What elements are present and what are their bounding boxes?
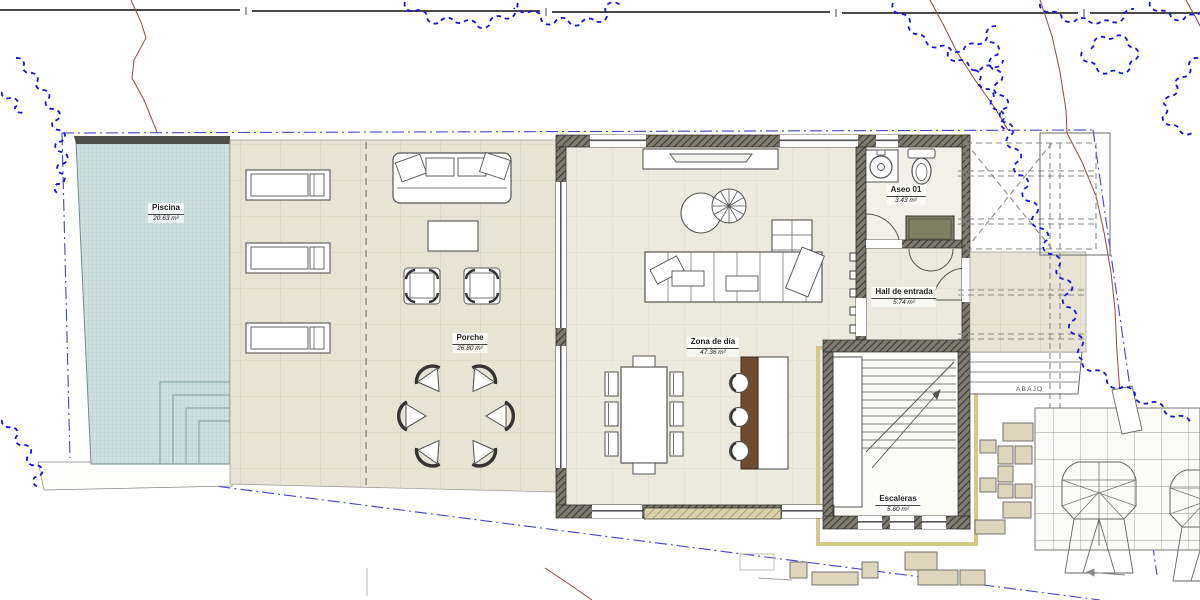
site-boundary-top <box>0 7 1200 17</box>
room-label-zona-de-dia: Zona de día 47.36 m² <box>687 330 739 357</box>
room-area: 5.60 m² <box>875 506 920 514</box>
room-label-piscina: Piscina 20.63 m² <box>148 196 184 223</box>
pool-deck <box>38 462 232 490</box>
floor-plan-drawing <box>0 0 1200 600</box>
hall-closet <box>906 216 954 242</box>
dining-set <box>605 356 683 474</box>
room-label-aseo-01: Aseo 01 3.43 m² <box>887 178 926 205</box>
room-name: Escaleras <box>875 494 920 506</box>
dining-chair <box>633 463 655 474</box>
room-label-escaleras: Escaleras 5.60 m² <box>875 487 920 514</box>
room-label-porche: Porche 26.80 m² <box>452 326 487 353</box>
pool <box>38 136 232 490</box>
dining-chair <box>633 356 655 367</box>
paving-outline <box>740 554 774 570</box>
driveway-arrow-icon <box>1087 569 1125 576</box>
bar-stool <box>730 408 749 427</box>
room-name: Aseo 01 <box>887 185 926 197</box>
room-area: 26.80 m² <box>452 345 487 353</box>
armchair <box>464 268 500 304</box>
room-area: 3.43 m² <box>887 197 926 205</box>
bar-stool <box>730 374 749 393</box>
room-name: Piscina <box>148 203 184 215</box>
sun-lounger <box>246 243 330 273</box>
floor-plan-canvas: Piscina 20.63 m² Porche 26.80 m² Zona de… <box>0 0 1200 600</box>
porch-sofa <box>393 152 511 203</box>
room-area: 5.74 m² <box>871 299 936 307</box>
room-name: Hall de entrada <box>871 287 936 299</box>
room-label-hall: Hall de entrada 5.74 m² <box>871 280 936 307</box>
room-area: 47.36 m² <box>687 349 739 357</box>
sun-lounger <box>246 170 330 200</box>
porch <box>230 140 556 492</box>
east-terrace-floor <box>970 252 1086 352</box>
kitchen-island <box>730 357 789 469</box>
armchair <box>404 268 440 304</box>
abajo-annotation: ABAJO <box>1016 386 1043 393</box>
kerb-line <box>758 578 792 580</box>
kitchen-sideboard <box>643 149 778 169</box>
driveway <box>1035 408 1200 550</box>
coffee-table <box>428 221 478 251</box>
spiral-stair-icon <box>712 189 746 223</box>
room-area: 20.63 m² <box>148 215 184 223</box>
room-name: Porche <box>452 333 487 345</box>
pool-edge-shadow <box>74 136 230 144</box>
bar-stool <box>730 442 749 461</box>
sun-lounger <box>246 323 330 353</box>
dining-table <box>621 367 667 463</box>
room-name: Zona de día <box>687 337 739 349</box>
